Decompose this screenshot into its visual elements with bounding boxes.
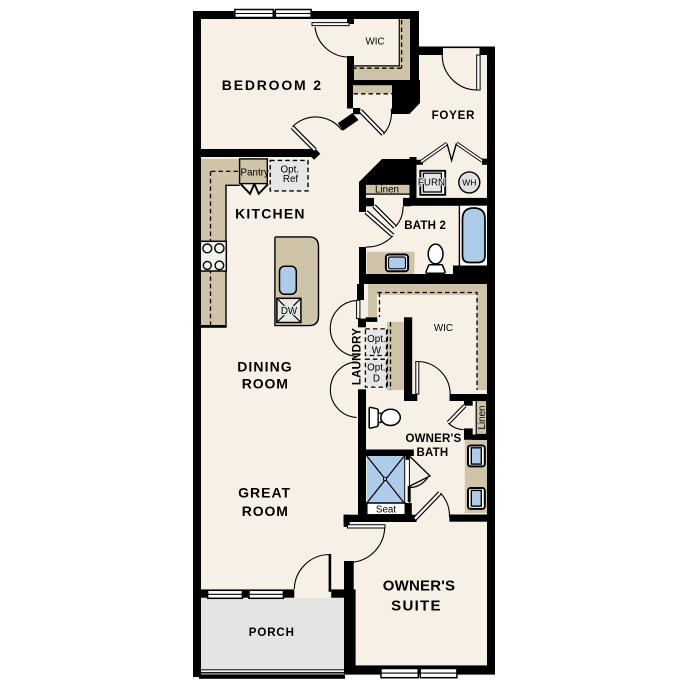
svg-text:WH: WH (462, 177, 476, 187)
svg-text:BATH 2: BATH 2 (404, 220, 446, 232)
svg-text:FURN: FURN (418, 177, 445, 188)
svg-text:GREAT: GREAT (238, 485, 291, 501)
svg-text:SUITE: SUITE (391, 597, 442, 614)
svg-text:Opt.: Opt. (367, 363, 386, 374)
svg-text:WIC: WIC (365, 37, 384, 48)
svg-text:KITCHEN: KITCHEN (235, 205, 306, 221)
svg-text:PORCH: PORCH (249, 627, 295, 639)
svg-text:LAUNDRY: LAUNDRY (352, 328, 364, 385)
svg-text:Linen: Linen (477, 406, 488, 430)
svg-text:BATH: BATH (416, 447, 448, 459)
svg-text:Pantry: Pantry (241, 168, 269, 179)
svg-text:BEDROOM 2: BEDROOM 2 (222, 77, 323, 93)
svg-text:OWNER'S: OWNER'S (405, 433, 461, 445)
svg-text:Opt.: Opt. (367, 334, 386, 345)
svg-text:OWNER'S: OWNER'S (383, 578, 455, 595)
svg-text:Seat: Seat (376, 504, 396, 515)
svg-text:DINING: DINING (237, 359, 293, 375)
svg-text:D: D (373, 374, 380, 385)
svg-text:Linen: Linen (375, 185, 399, 196)
svg-text:FOYER: FOYER (432, 110, 476, 122)
svg-text:ROOM: ROOM (242, 376, 289, 392)
svg-text:ROOM: ROOM (242, 503, 289, 519)
svg-text:W: W (372, 346, 382, 357)
svg-text:DW: DW (281, 306, 298, 317)
svg-text:WIC: WIC (434, 323, 453, 334)
svg-text:Ref: Ref (283, 174, 299, 185)
